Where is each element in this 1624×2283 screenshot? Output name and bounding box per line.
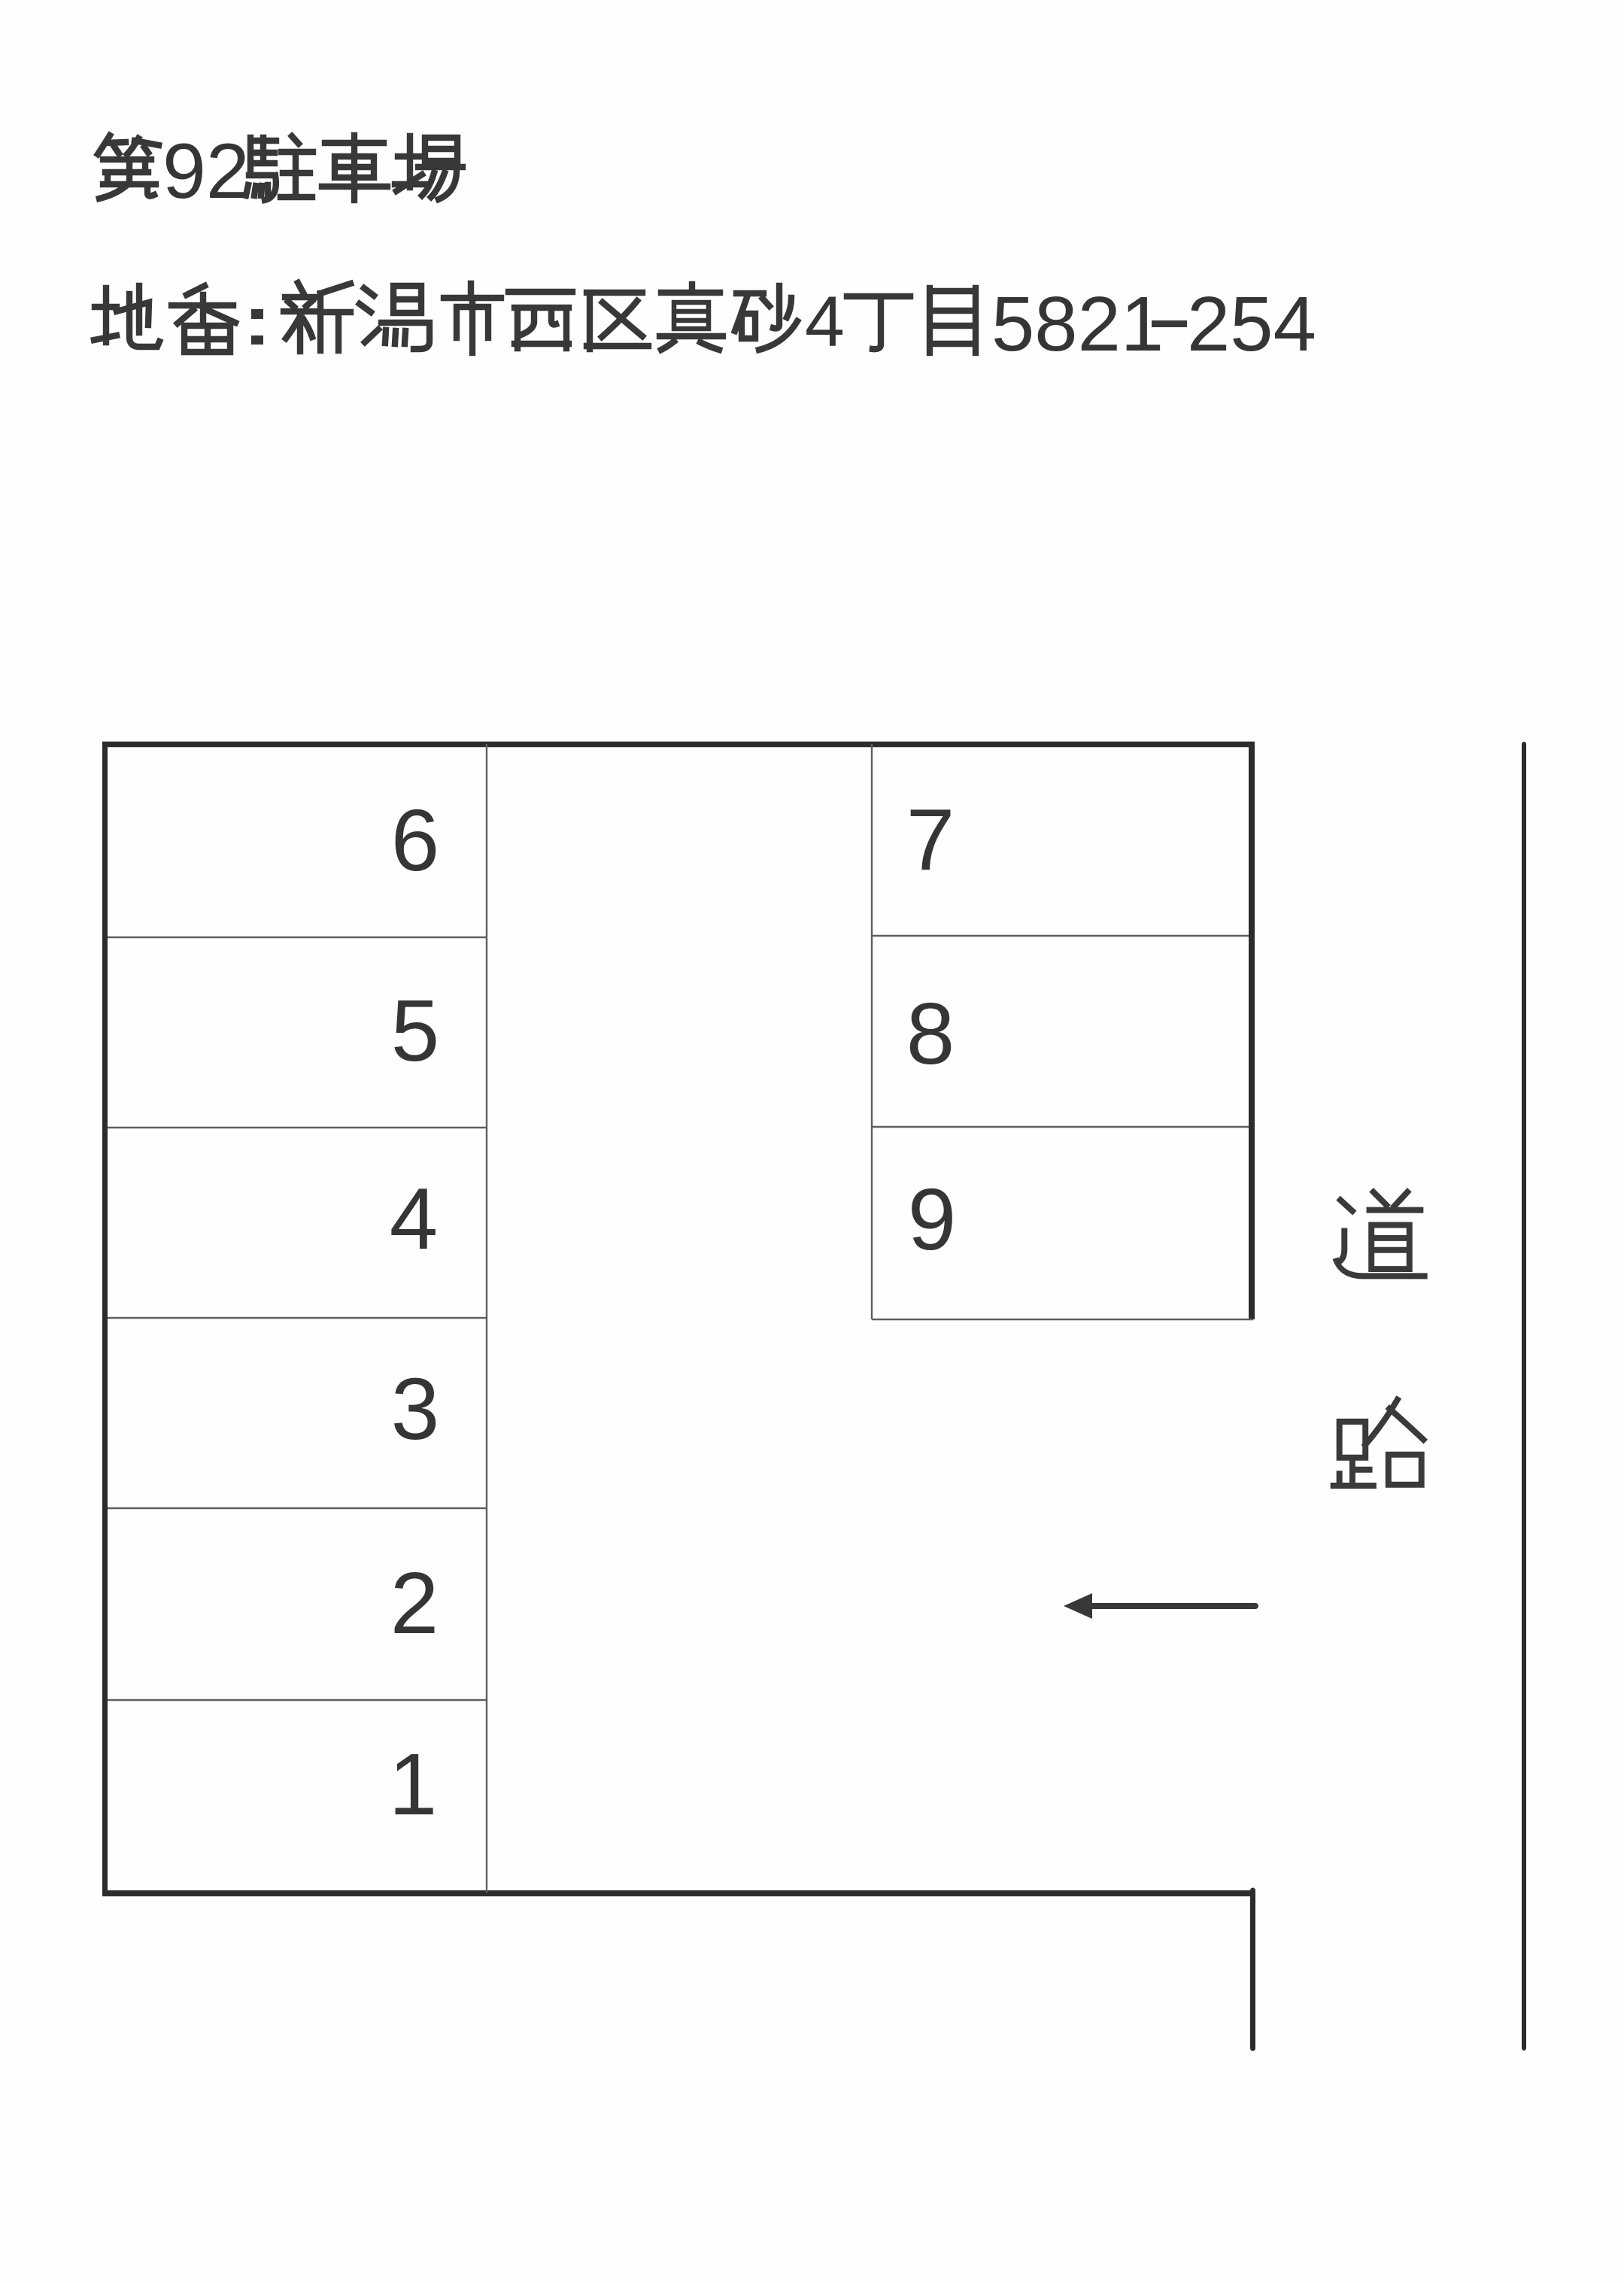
svg-text:7: 7 — [906, 791, 955, 888]
svg-text:9: 9 — [908, 1170, 957, 1268]
svg-text:1: 1 — [389, 1735, 438, 1833]
svg-text:5821: 5821 — [991, 281, 1164, 367]
svg-text:8: 8 — [906, 985, 955, 1082]
svg-text:3: 3 — [391, 1360, 440, 1458]
svg-text:92: 92 — [162, 128, 250, 215]
svg-text:4: 4 — [805, 282, 845, 362]
svg-text:4: 4 — [390, 1170, 439, 1267]
svg-text:2: 2 — [390, 1554, 439, 1652]
svg-text:5: 5 — [391, 982, 440, 1079]
svg-text:254: 254 — [1187, 281, 1316, 367]
svg-text:6: 6 — [391, 791, 440, 889]
